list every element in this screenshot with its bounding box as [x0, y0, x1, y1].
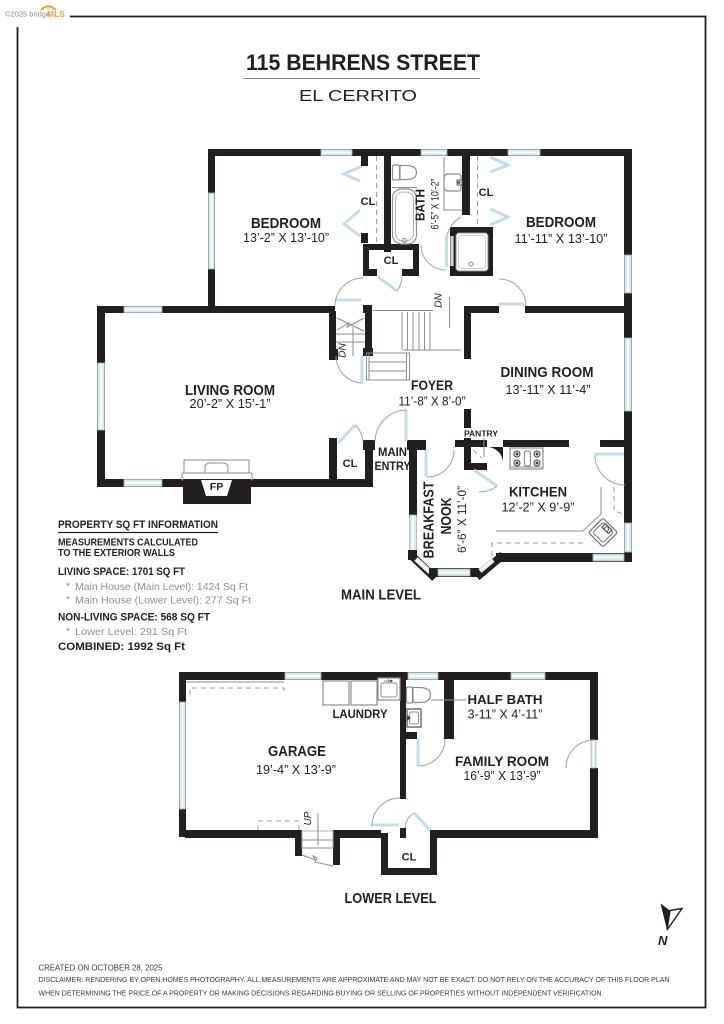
svg-text:DN: DN	[338, 343, 349, 358]
svg-text:HALF BATH: HALF BATH	[468, 693, 543, 707]
svg-text:EL CERRITO: EL CERRITO	[299, 88, 417, 105]
svg-text:COMBINED: 1992 Sq Ft: COMBINED: 1992 Sq Ft	[58, 641, 185, 653]
svg-text:MLS: MLS	[47, 9, 65, 19]
svg-text:PROPERTY SQ FT INFORMATION: PROPERTY SQ FT INFORMATION	[58, 519, 218, 531]
svg-text:Main House (Main Level): 1424: Main House (Main Level): 1424 Sq Ft	[75, 581, 248, 593]
svg-text:19’-4” X 13’-9”: 19’-4” X 13’-9”	[256, 762, 336, 777]
svg-text:13’-11” X 11’-4”: 13’-11” X 11’-4”	[506, 382, 591, 397]
svg-text:*: *	[66, 594, 70, 606]
svg-text:GARAGE: GARAGE	[268, 743, 326, 760]
svg-text:N: N	[658, 933, 668, 948]
svg-text:LIVING SPACE: 1701 SQ FT: LIVING SPACE: 1701 SQ FT	[58, 566, 185, 578]
svg-text:WHEN DETERMINING THE PRICE OF: WHEN DETERMINING THE PRICE OF A PROPERTY…	[39, 989, 604, 998]
svg-text:FOYER: FOYER	[411, 378, 453, 393]
svg-text:BREAKFAST: BREAKFAST	[421, 482, 438, 559]
svg-text:Lower Level: 291 Sq Ft: Lower Level: 291 Sq Ft	[75, 626, 187, 638]
svg-text:FP: FP	[210, 481, 223, 493]
svg-text:LOWER LEVEL: LOWER LEVEL	[345, 890, 437, 907]
svg-text:13’-2” X 13’-10”: 13’-2” X 13’-10”	[243, 230, 329, 245]
svg-text:PANTRY: PANTRY	[464, 430, 499, 439]
svg-text:11’-11” X 13’-10”: 11’-11” X 13’-10”	[515, 231, 608, 246]
svg-text:FAMILY ROOM: FAMILY ROOM	[455, 753, 549, 769]
svg-text:6’-6” X 11’-0”: 6’-6” X 11’-0”	[455, 486, 469, 553]
svg-text:20’-2” X 15’-1”: 20’-2” X 15’-1”	[190, 396, 271, 411]
svg-text:CL: CL	[384, 255, 399, 267]
svg-text:LAUNDRY: LAUNDRY	[333, 707, 388, 721]
svg-text:MAIN LEVEL: MAIN LEVEL	[341, 587, 421, 604]
svg-text:BEDROOM: BEDROOM	[526, 214, 596, 231]
svg-text:DISCLAIMER: RENDERING BY OPEN: DISCLAIMER: RENDERING BY OPEN HOMES PHOT…	[39, 975, 670, 984]
svg-text:115 BEHRENS STREET: 115 BEHRENS STREET	[246, 50, 481, 75]
svg-text:16’-9” X 13’-9”: 16’-9” X 13’-9”	[464, 768, 541, 783]
svg-text:CL: CL	[361, 196, 376, 208]
svg-text:*: *	[66, 626, 70, 638]
svg-text:©2025 bridge: ©2025 bridge	[5, 10, 50, 19]
svg-text:BATH: BATH	[414, 189, 428, 221]
svg-text:12’-2” X 9’-9”: 12’-2” X 9’-9”	[502, 500, 575, 515]
svg-text:CL: CL	[402, 852, 417, 864]
svg-text:TO THE EXTERIOR WALLS: TO THE EXTERIOR WALLS	[58, 547, 175, 559]
svg-text:ENTRY: ENTRY	[375, 461, 411, 473]
svg-text:3-11” X 4’-11”: 3-11” X 4’-11”	[468, 707, 543, 722]
svg-text:CREATED ON OCTOBER 28, 2025: CREATED ON OCTOBER 28, 2025	[39, 964, 163, 973]
svg-text:DINING ROOM: DINING ROOM	[501, 364, 594, 381]
svg-text:*: *	[66, 581, 70, 593]
svg-text:CL: CL	[343, 458, 358, 470]
svg-text:NOOK: NOOK	[438, 497, 455, 534]
svg-text:NON-LIVING SPACE: 568 SQ FT: NON-LIVING SPACE: 568 SQ FT	[58, 612, 210, 624]
svg-text:DN: DN	[434, 293, 445, 308]
svg-text:KITCHEN: KITCHEN	[509, 484, 567, 500]
svg-text:11’-8” X 8’-0”: 11’-8” X 8’-0”	[399, 394, 466, 409]
svg-text:6’-5” X 10’-2”: 6’-5” X 10’-2”	[430, 178, 442, 229]
svg-text:MAIN: MAIN	[378, 447, 407, 459]
svg-text:UP: UP	[303, 811, 314, 825]
svg-text:Main House (Lower Level): 277: Main House (Lower Level): 277 Sq Ft	[75, 595, 251, 607]
svg-text:CL: CL	[479, 187, 494, 199]
